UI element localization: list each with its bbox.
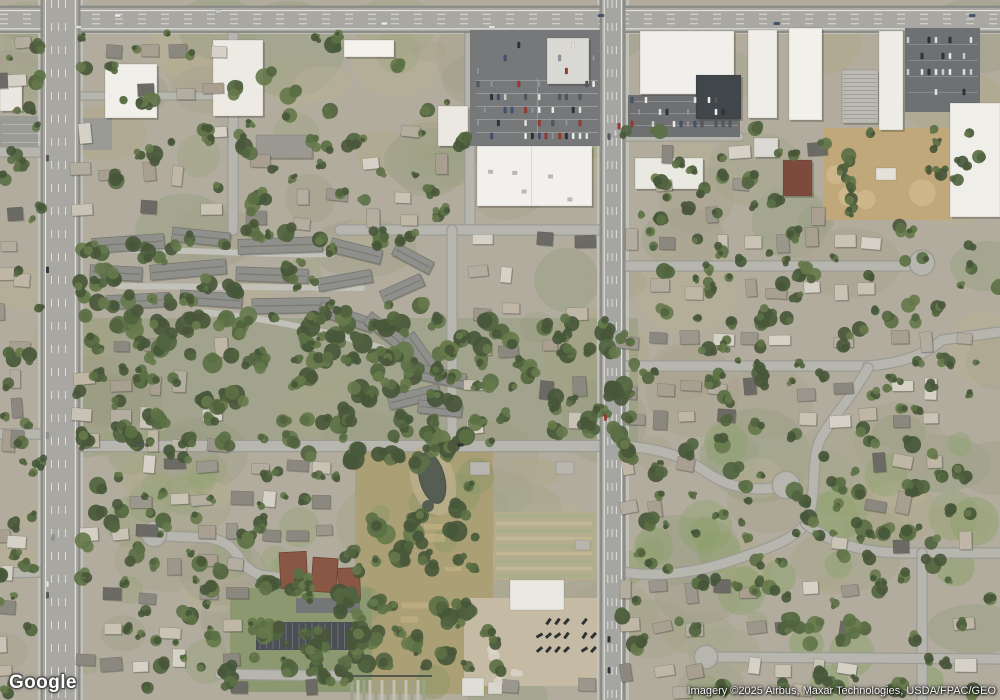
google-logo[interactable]: Google: [9, 672, 77, 694]
map-viewport[interactable]: Google Imagery ©2025 Airbus, Maxar Techn…: [0, 0, 1000, 700]
satellite-imagery: [0, 0, 1000, 700]
imagery-attribution: Imagery ©2025 Airbus, Maxar Technologies…: [688, 685, 997, 697]
